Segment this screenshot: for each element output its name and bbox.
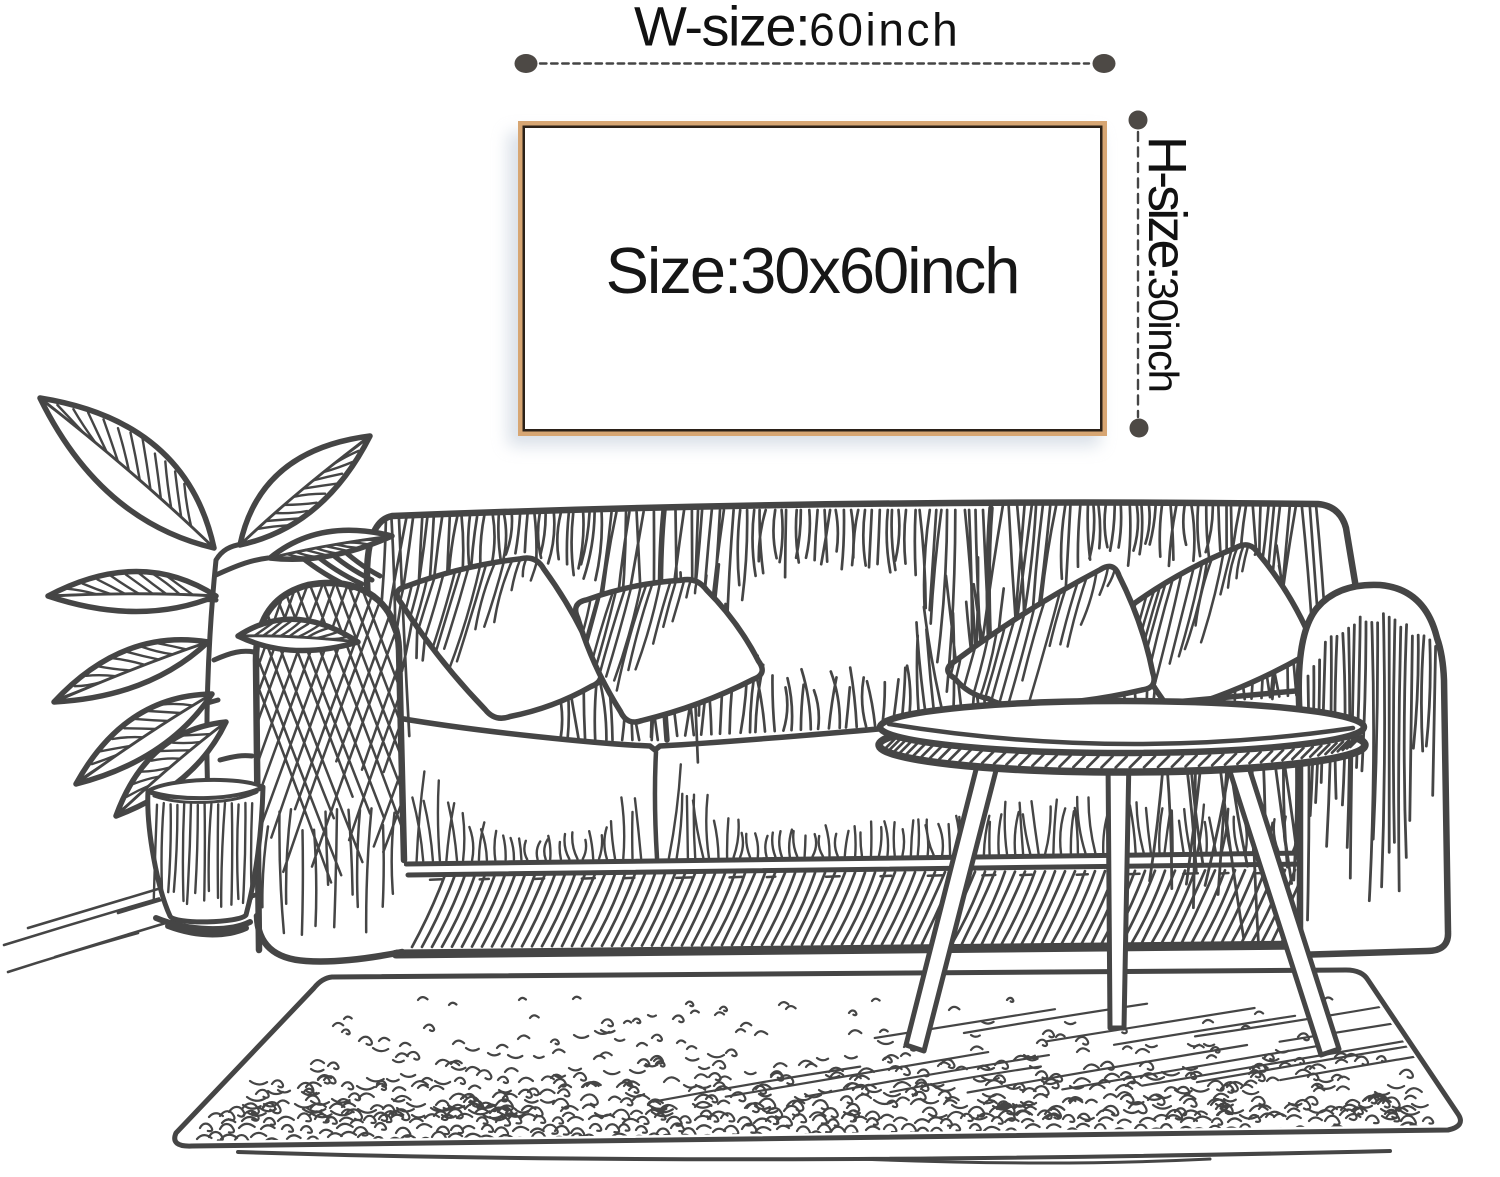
svg-text:Size:30x60inch: Size:30x60inch [606,234,1019,307]
svg-text:W-size:60inch: W-size:60inch [634,0,960,58]
